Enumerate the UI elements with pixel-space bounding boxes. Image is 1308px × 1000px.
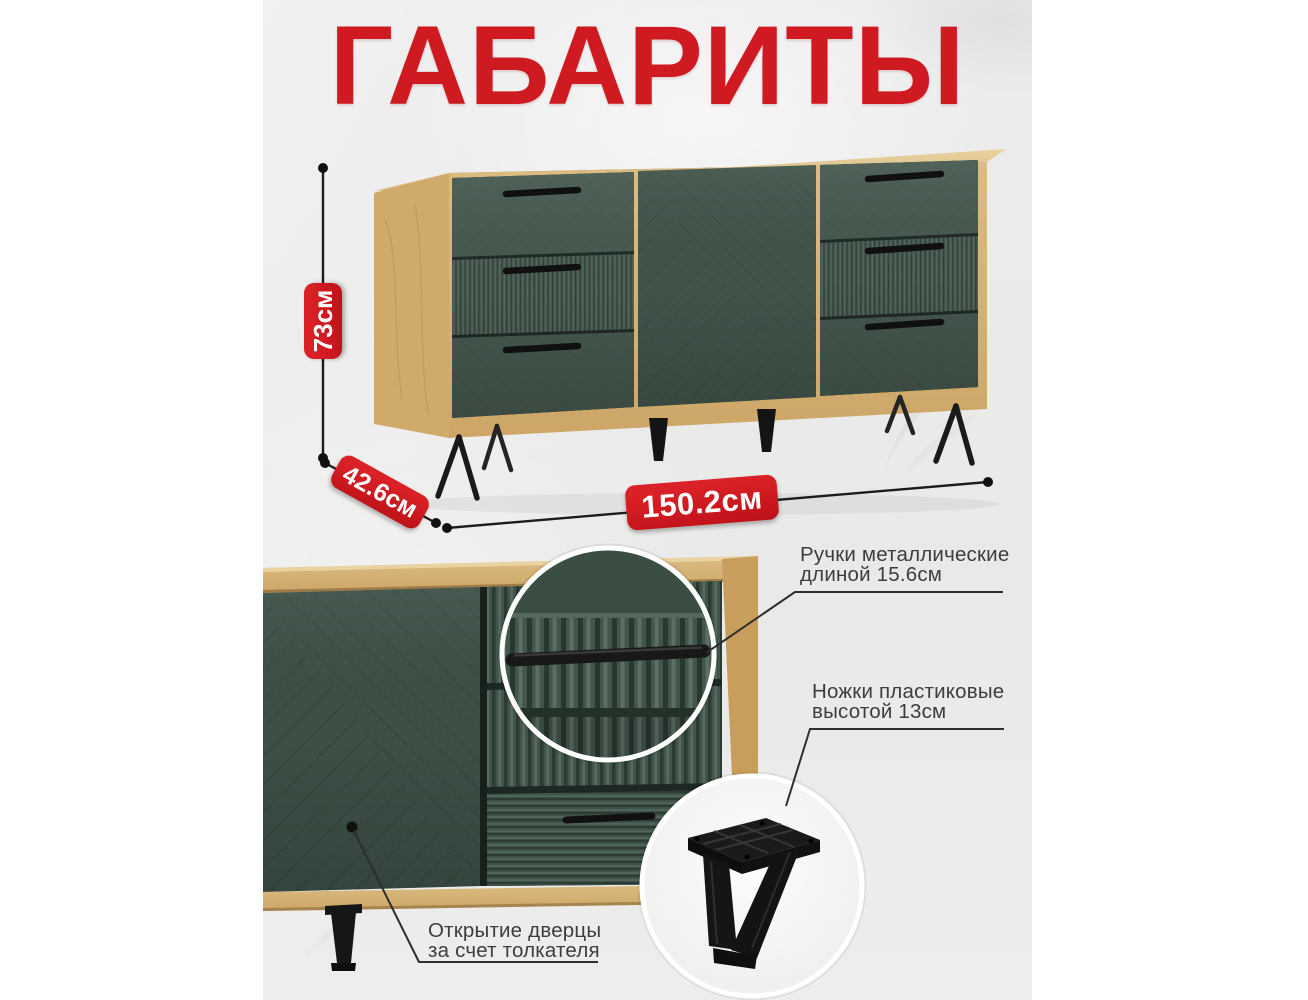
handles-callout-line1: Ручки металлические <box>800 545 1009 565</box>
right-drawer-stack <box>820 160 978 396</box>
width-dimension-value: 150.2см <box>640 480 764 525</box>
handles-callout: Ручки металлические длиной 15.6см <box>800 545 1009 584</box>
closeup-door <box>263 587 480 892</box>
dimension-endpoint-dot <box>442 523 452 533</box>
cabinet-door <box>638 165 816 407</box>
legs-callout: Ножки пластиковые высотой 13см <box>812 682 1004 721</box>
height-dimension-value: 73см <box>308 290 339 353</box>
dimension-endpoint-dot <box>983 477 993 487</box>
sideboard-render <box>374 149 1006 515</box>
door-callout-line2: за счет толкателя <box>428 941 601 961</box>
door-callout: Открытие дверцы за счет толкателя <box>428 921 601 960</box>
closeup-drawer-handle <box>566 816 652 820</box>
handles-callout-line2: длиной 15.6см <box>800 565 1009 585</box>
leg-zoom-circle <box>640 774 865 999</box>
door-pusher-dot <box>347 822 358 833</box>
dimension-endpoint-dot <box>320 458 330 468</box>
dimension-endpoint-dot <box>431 518 441 528</box>
left-drawer-stack <box>452 172 634 418</box>
legs-callout-line1: Ножки пластиковые <box>812 682 1004 702</box>
height-dimension-badge: 73см <box>304 283 342 359</box>
furniture-dimensions-infographic: ГАБАРИТЫ 73см 42.6см 150.2см Ручки метал… <box>0 0 1308 1000</box>
legs-callout-line2: высотой 13см <box>812 702 1004 722</box>
door-callout-line1: Открытие дверцы <box>428 921 601 941</box>
dimension-endpoint-dot <box>318 163 328 173</box>
page-title: ГАБАРИТЫ <box>263 14 1032 118</box>
cabinet-left-side <box>374 173 449 438</box>
